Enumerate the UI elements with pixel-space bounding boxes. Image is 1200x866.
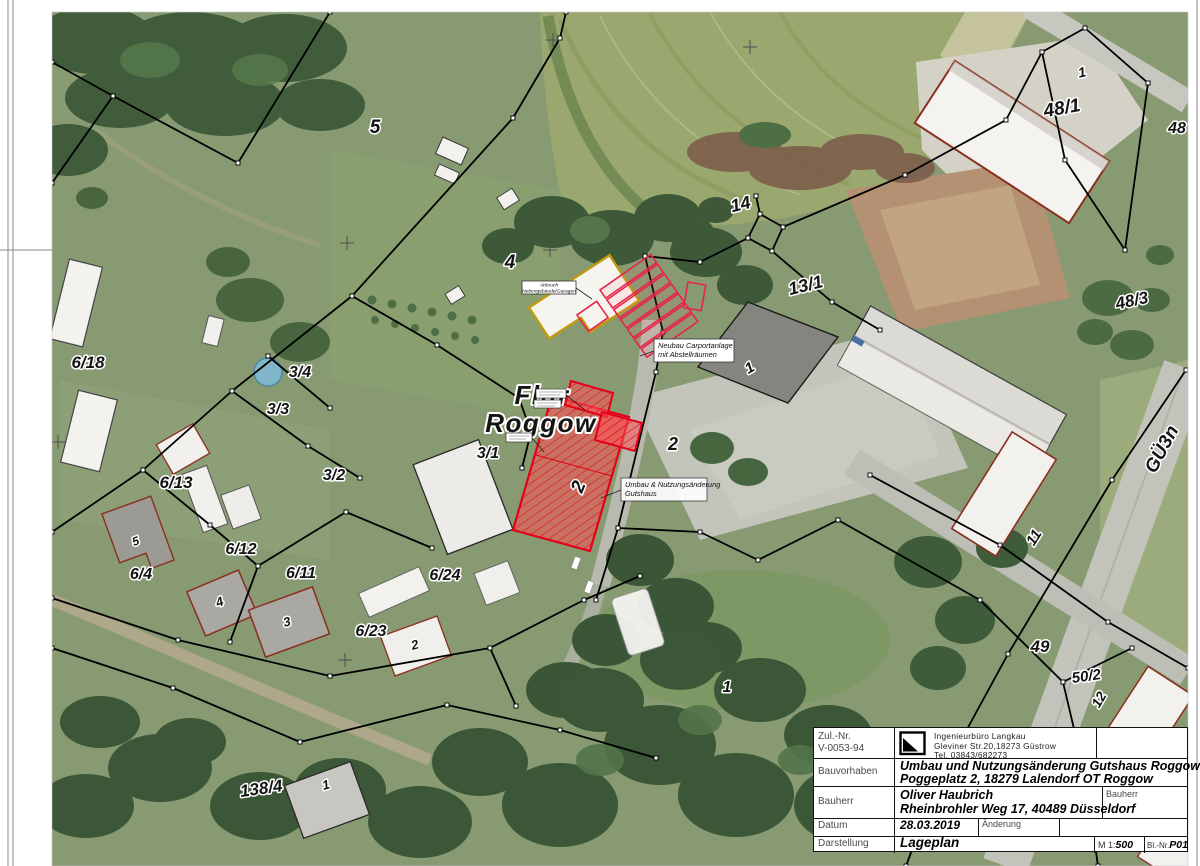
- darstellung-label: Darstellung: [818, 838, 869, 849]
- bauherr-line2: Rheinbrohler Weg 17, 40489 Düsseldorf: [900, 803, 1135, 817]
- abbruch-annotation-line1: Abbruch: [539, 283, 558, 289]
- parcel-label-3-1: 3/1: [477, 445, 499, 462]
- scale-value: 500: [1116, 839, 1134, 851]
- parcel-label-49: 49: [1030, 637, 1050, 656]
- company-logo-icon: [899, 731, 927, 756]
- bauherr-label: Bauherr: [818, 796, 854, 807]
- parcel-label-3-2: 3/2: [323, 467, 345, 484]
- flur-label-line2: Roggow: [485, 408, 597, 438]
- abbruch-annotation-line2: Nebengebäude/Garagen: [522, 289, 576, 295]
- scale-cell: M 1:500: [1098, 839, 1133, 851]
- bauherr-right-label: Bauherr: [1106, 789, 1138, 799]
- parcel-label-6-13: 6/13: [159, 473, 193, 492]
- parcel-label-48: 48: [1167, 120, 1186, 137]
- carport-annotation-line2: mit Abstellräumen: [658, 350, 717, 359]
- zul-nr-label: Zul.-Nr.: [818, 731, 851, 742]
- parcel-label-6-12: 6/12: [225, 541, 256, 558]
- plan-sheet: Flur Roggow 5 4 6/18 3/4 3/3 3/2 3/1 6/1…: [0, 0, 1200, 866]
- bauvorhaben-label: Bauvorhaben: [818, 766, 878, 777]
- bauvorhaben-line2: Poggeplatz 2, 18279 Lalendorf OT Roggow: [900, 773, 1153, 787]
- parcel-label-6-11: 6/11: [286, 565, 316, 582]
- parcel-label-6-4: 6/4: [130, 566, 152, 583]
- parcel-label-6-23: 6/23: [355, 623, 386, 640]
- parcel-label-1: 1: [723, 679, 732, 696]
- datum-label: Datum: [818, 820, 847, 831]
- darstellung-value: Lageplan: [900, 836, 959, 850]
- umbau-annotation-line2: Gutshaus: [625, 489, 657, 498]
- parcel-label-5: 5: [370, 117, 381, 138]
- sheet-number-cell: Bl.-Nr.P01: [1147, 839, 1188, 851]
- parcel-label-4: 4: [504, 252, 516, 273]
- parcel-label-6-18: 6/18: [71, 353, 105, 372]
- sheet-number-value: P01: [1169, 839, 1188, 851]
- zul-nr-value: V-0053-94: [818, 743, 864, 754]
- carport-annotation-line1: Neubau Carportanlage: [658, 341, 733, 350]
- parcel-label-3-4: 3/4: [289, 364, 311, 381]
- parcel-label-2: 2: [667, 434, 678, 454]
- datum-value: 28.03.2019: [900, 819, 960, 833]
- bauherr-line1: Oliver Haubrich: [900, 789, 993, 803]
- parcel-label-3-3: 3/3: [267, 401, 289, 418]
- aenderung-label: Änderung: [982, 819, 1021, 829]
- title-block: Zul.-Nr. V-0053-94 Ingenieurbüro Langkau…: [813, 727, 1188, 852]
- parcel-label-6-24: 6/24: [429, 567, 460, 584]
- umbau-annotation-line1: Umbau & Nutzungsänderung: [625, 480, 721, 489]
